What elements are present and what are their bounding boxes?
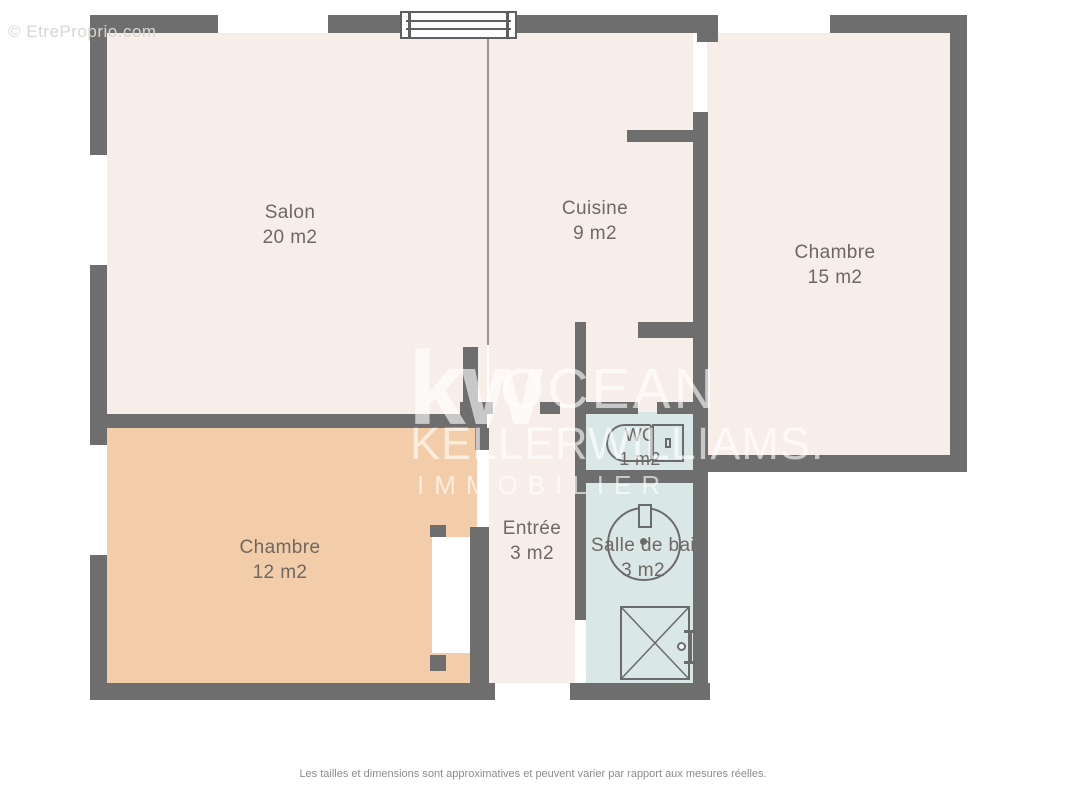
room-label-chambre-15: Chambre 15 m2 xyxy=(730,240,940,290)
wall xyxy=(90,555,107,700)
wall xyxy=(570,683,710,700)
wall xyxy=(90,683,495,700)
shower-valve-cap-icon xyxy=(684,630,696,633)
wall xyxy=(693,112,708,700)
wall xyxy=(540,402,560,414)
room-name: Salon xyxy=(265,202,316,223)
room-label-chambre-12: Chambre 12 m2 xyxy=(170,535,390,585)
wall xyxy=(638,322,693,338)
room-area: 15 m2 xyxy=(808,267,863,288)
room-label-salle-de-bain: Salle de bai 3 m2 xyxy=(543,533,743,583)
shower-knob-icon xyxy=(677,642,686,651)
room-area: 12 m2 xyxy=(253,562,308,583)
wall xyxy=(950,15,967,472)
room-entree-fill xyxy=(489,345,575,683)
wall xyxy=(697,33,718,42)
wall xyxy=(475,428,489,450)
room-label-cuisine: Cuisine 9 m2 xyxy=(500,196,690,246)
room-name: Chambre xyxy=(240,537,321,558)
wall xyxy=(700,455,967,472)
shower-valve-cap-icon xyxy=(684,661,696,664)
credit-watermark: © EtreProprio.com xyxy=(8,22,157,42)
wall xyxy=(830,15,967,33)
wall xyxy=(575,470,693,483)
room-label-wc: WC 1 m2 xyxy=(590,424,690,472)
wall xyxy=(90,265,107,445)
room-area: 20 m2 xyxy=(263,227,318,248)
room-label-salon: Salon 20 m2 xyxy=(180,200,400,250)
floor-plan: Salon 20 m2 Cuisine 9 m2 Chambre 15 m2 C… xyxy=(0,0,1066,800)
room-name: WC xyxy=(625,425,656,445)
wall xyxy=(430,655,446,671)
wall xyxy=(575,322,586,412)
room-name: Salle de bai xyxy=(591,535,695,556)
wall xyxy=(107,414,487,428)
room-name: Cuisine xyxy=(562,198,628,219)
window-icon xyxy=(400,11,517,39)
room-area: 1 m2 xyxy=(619,449,661,469)
disclaimer-text: Les tailles et dimensions sont approxima… xyxy=(0,768,1066,780)
wall xyxy=(515,15,718,33)
sink-tap-icon xyxy=(638,504,652,528)
room-name: Chambre xyxy=(795,242,876,263)
wall xyxy=(463,347,478,404)
wall xyxy=(328,15,402,33)
wall xyxy=(430,525,446,537)
wall xyxy=(657,402,693,414)
wall xyxy=(627,130,697,142)
wall xyxy=(586,402,638,414)
room-area: 3 m2 xyxy=(621,560,665,581)
salon-cuisine-divider xyxy=(487,39,489,345)
room-area: 9 m2 xyxy=(573,223,617,244)
shower-valve-icon xyxy=(688,632,692,662)
